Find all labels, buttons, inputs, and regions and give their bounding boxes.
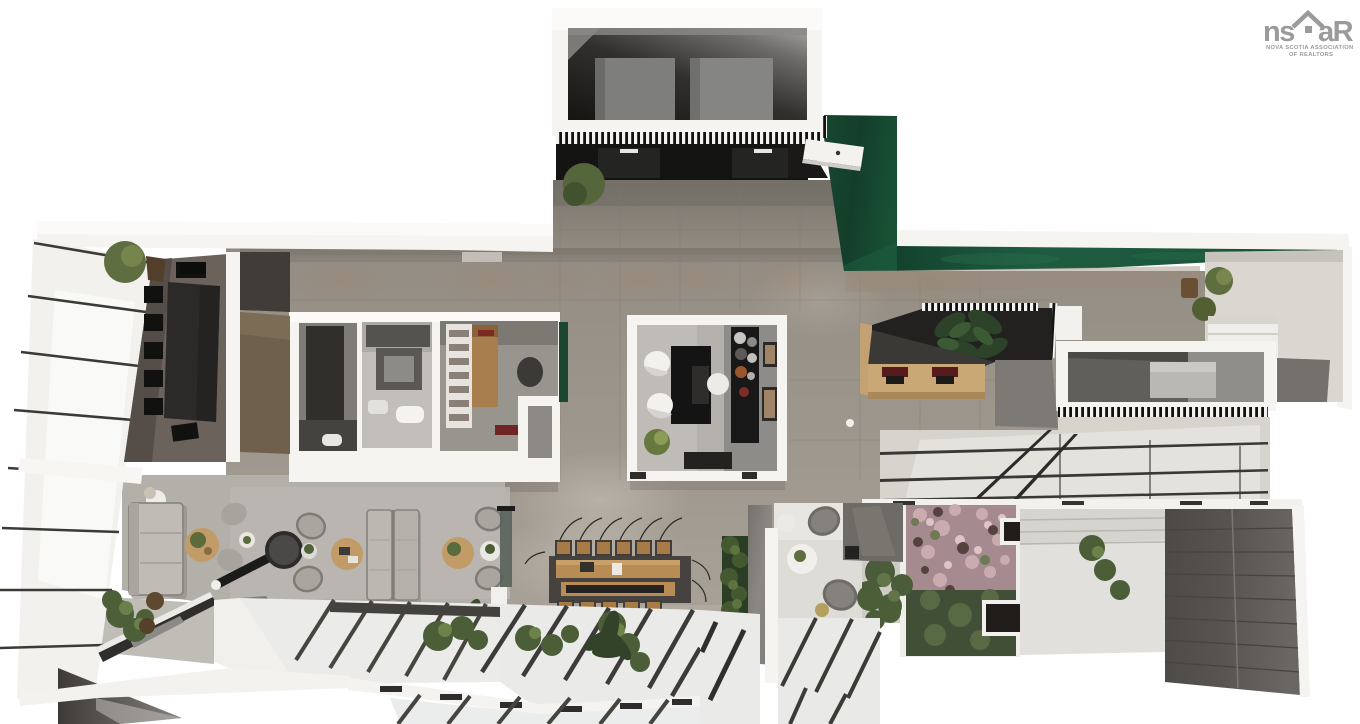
svg-text:ns: ns bbox=[1263, 16, 1294, 48]
svg-text:NOVA SCOTIA ASSOCIATION: NOVA SCOTIA ASSOCIATION bbox=[1266, 45, 1354, 51]
svg-text:OF REALTORS: OF REALTORS bbox=[1289, 52, 1333, 58]
svg-text:aR: aR bbox=[1318, 16, 1354, 48]
